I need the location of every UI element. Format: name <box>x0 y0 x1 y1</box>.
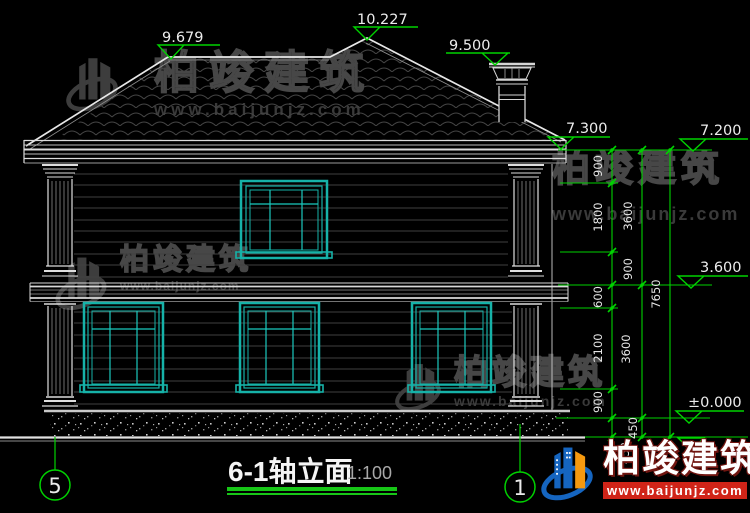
footer-brand-text: 柏竣建筑 <box>603 438 750 481</box>
dim-label: 7650 <box>649 279 663 308</box>
plinth-ground <box>0 411 585 441</box>
brand-logo-color-icon <box>538 438 596 506</box>
elevation-label: 10.227 <box>357 12 408 28</box>
dim-label: 900 <box>591 391 605 413</box>
footer-url-text: www.baijunjz.com <box>603 482 747 499</box>
dim-label: 3600 <box>621 201 635 230</box>
window-lower-left <box>80 303 167 392</box>
elevation-label: 7.300 <box>566 121 608 137</box>
title-underline-thick <box>227 487 397 491</box>
elevation-label: 7.200 <box>700 123 742 139</box>
dim-label: 3600 <box>619 334 633 363</box>
dim-label: 1800 <box>591 202 605 231</box>
belt-course <box>30 283 568 302</box>
dimension-ticks <box>608 146 674 441</box>
elevation-label: 3.600 <box>700 260 742 276</box>
cad-canvas: 柏竣建筑 www.baijunjz.com 柏竣建筑 www.baijunjz.… <box>0 0 750 513</box>
window-lower-right <box>408 303 495 392</box>
elevation-drawing: 900 1800 900 600 2100 900 450 3600 3600 … <box>0 0 750 513</box>
dim-label: 900 <box>621 258 635 280</box>
elevation-label: ±0.000 <box>688 395 742 411</box>
axis-bubble-label: 1 <box>513 476 526 500</box>
dim-label: 900 <box>591 155 605 177</box>
title-underline-thin <box>227 493 397 495</box>
eave-fascia <box>24 140 566 163</box>
dim-label: 2100 <box>591 333 605 362</box>
pilaster-right <box>508 165 544 406</box>
drawing-title: 6-1轴立面 <box>228 455 352 487</box>
elevation-label: 9.679 <box>162 30 204 46</box>
pilaster-left <box>42 165 78 406</box>
drawing-scale: 1:100 <box>347 463 392 483</box>
footer-brand-logo: 柏竣建筑 www.baijunjz.com <box>538 438 750 506</box>
title-block: 6-1轴立面 1:100 <box>227 455 397 495</box>
elevation-label: 9.500 <box>449 38 491 54</box>
dim-label: 600 <box>591 286 605 308</box>
axis-left: 5 <box>40 437 70 500</box>
axis-bubble-label: 5 <box>48 474 61 498</box>
window-lower-middle <box>236 303 323 392</box>
dim-label: 450 <box>626 417 640 439</box>
